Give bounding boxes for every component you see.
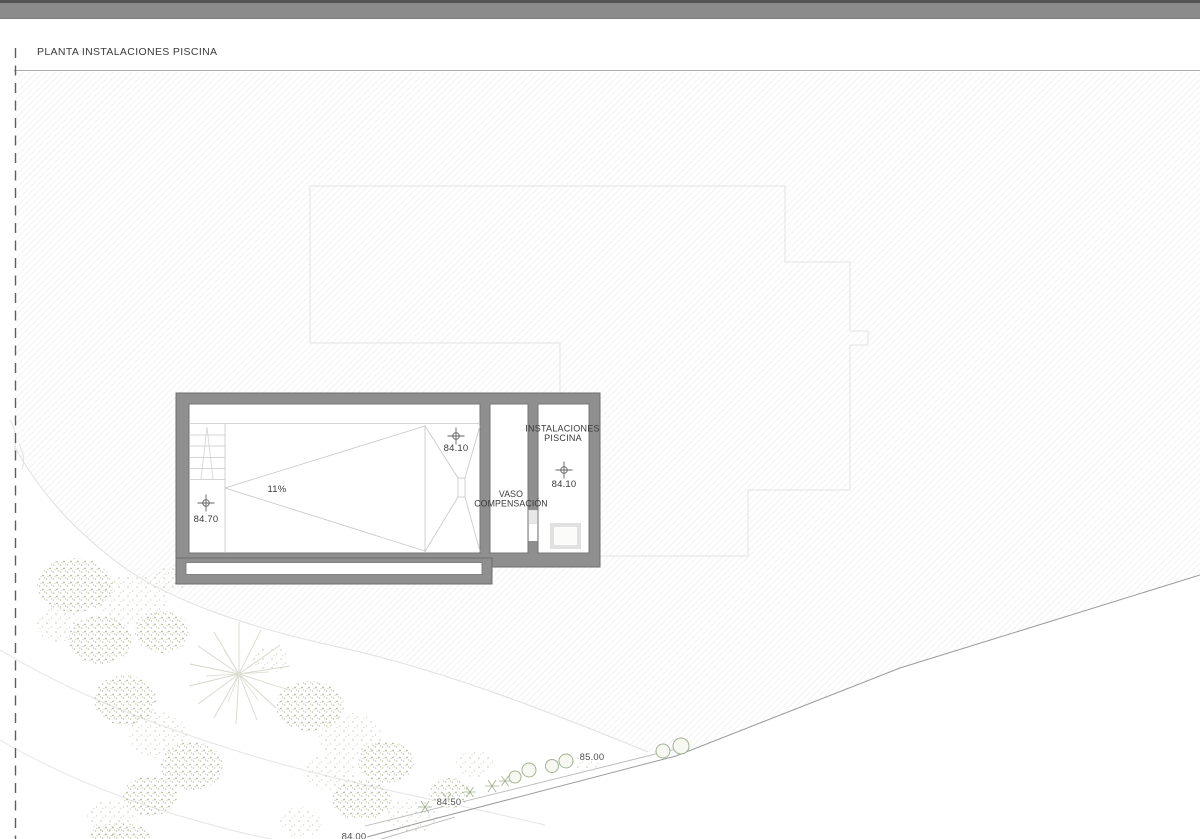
label-plant-room-1: INSTALACIONES	[525, 424, 600, 434]
equipment-pad	[552, 525, 579, 547]
overflow-channel-slot	[186, 563, 482, 575]
label-vaso-2: COMPENSACIÓN	[474, 499, 548, 509]
sump	[458, 478, 465, 497]
sheet: PLANTA INSTALACIONES PISCINA	[0, 0, 1200, 839]
label-slope: 11%	[268, 484, 287, 495]
pool-structure: 84.10 84.70 84.10 11% VASO COMPENSACIÓN …	[176, 393, 600, 584]
contour-label-85: 85.00	[580, 752, 605, 763]
label-level-shallow: 84.70	[194, 514, 219, 525]
label-vaso-1: VASO	[499, 489, 523, 499]
label-level-plant-room: 84.10	[552, 479, 577, 490]
contour-label-84-00: 84.00	[342, 832, 367, 839]
plan-canvas: 85.00 84.50 84.00	[0, 0, 1200, 839]
pool-basin	[189, 404, 480, 553]
vaso-room	[490, 404, 528, 553]
door-opening	[529, 510, 538, 541]
label-plant-room-2: PISCINA	[544, 433, 582, 443]
label-level-deep: 84.10	[444, 443, 469, 454]
contour-label-84-50: 84.50	[437, 797, 462, 808]
